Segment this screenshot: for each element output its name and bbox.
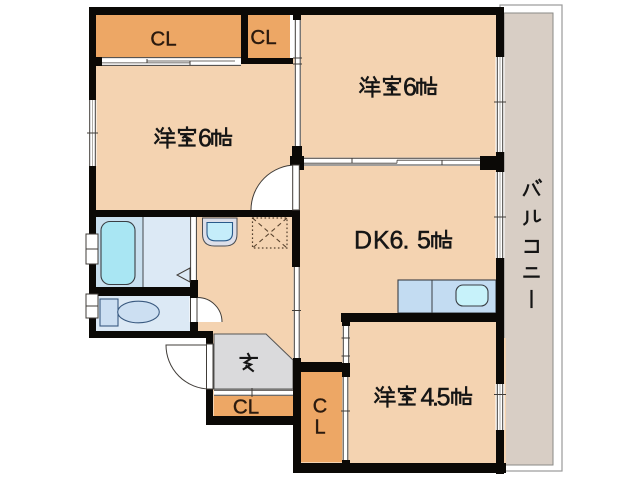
svg-text:C: C — [313, 395, 327, 417]
svg-text:CL: CL — [233, 395, 259, 418]
svg-text:6.: 6. — [390, 227, 410, 255]
svg-text:CL: CL — [250, 26, 276, 49]
svg-text:D: D — [354, 227, 372, 255]
svg-text:4.5: 4.5 — [421, 384, 451, 412]
svg-text:6: 6 — [403, 74, 417, 102]
svg-text:5: 5 — [417, 227, 431, 255]
svg-text:K: K — [373, 227, 390, 255]
svg-text:6: 6 — [198, 125, 212, 153]
svg-text:CL: CL — [150, 28, 176, 51]
svg-text:L: L — [314, 417, 325, 439]
